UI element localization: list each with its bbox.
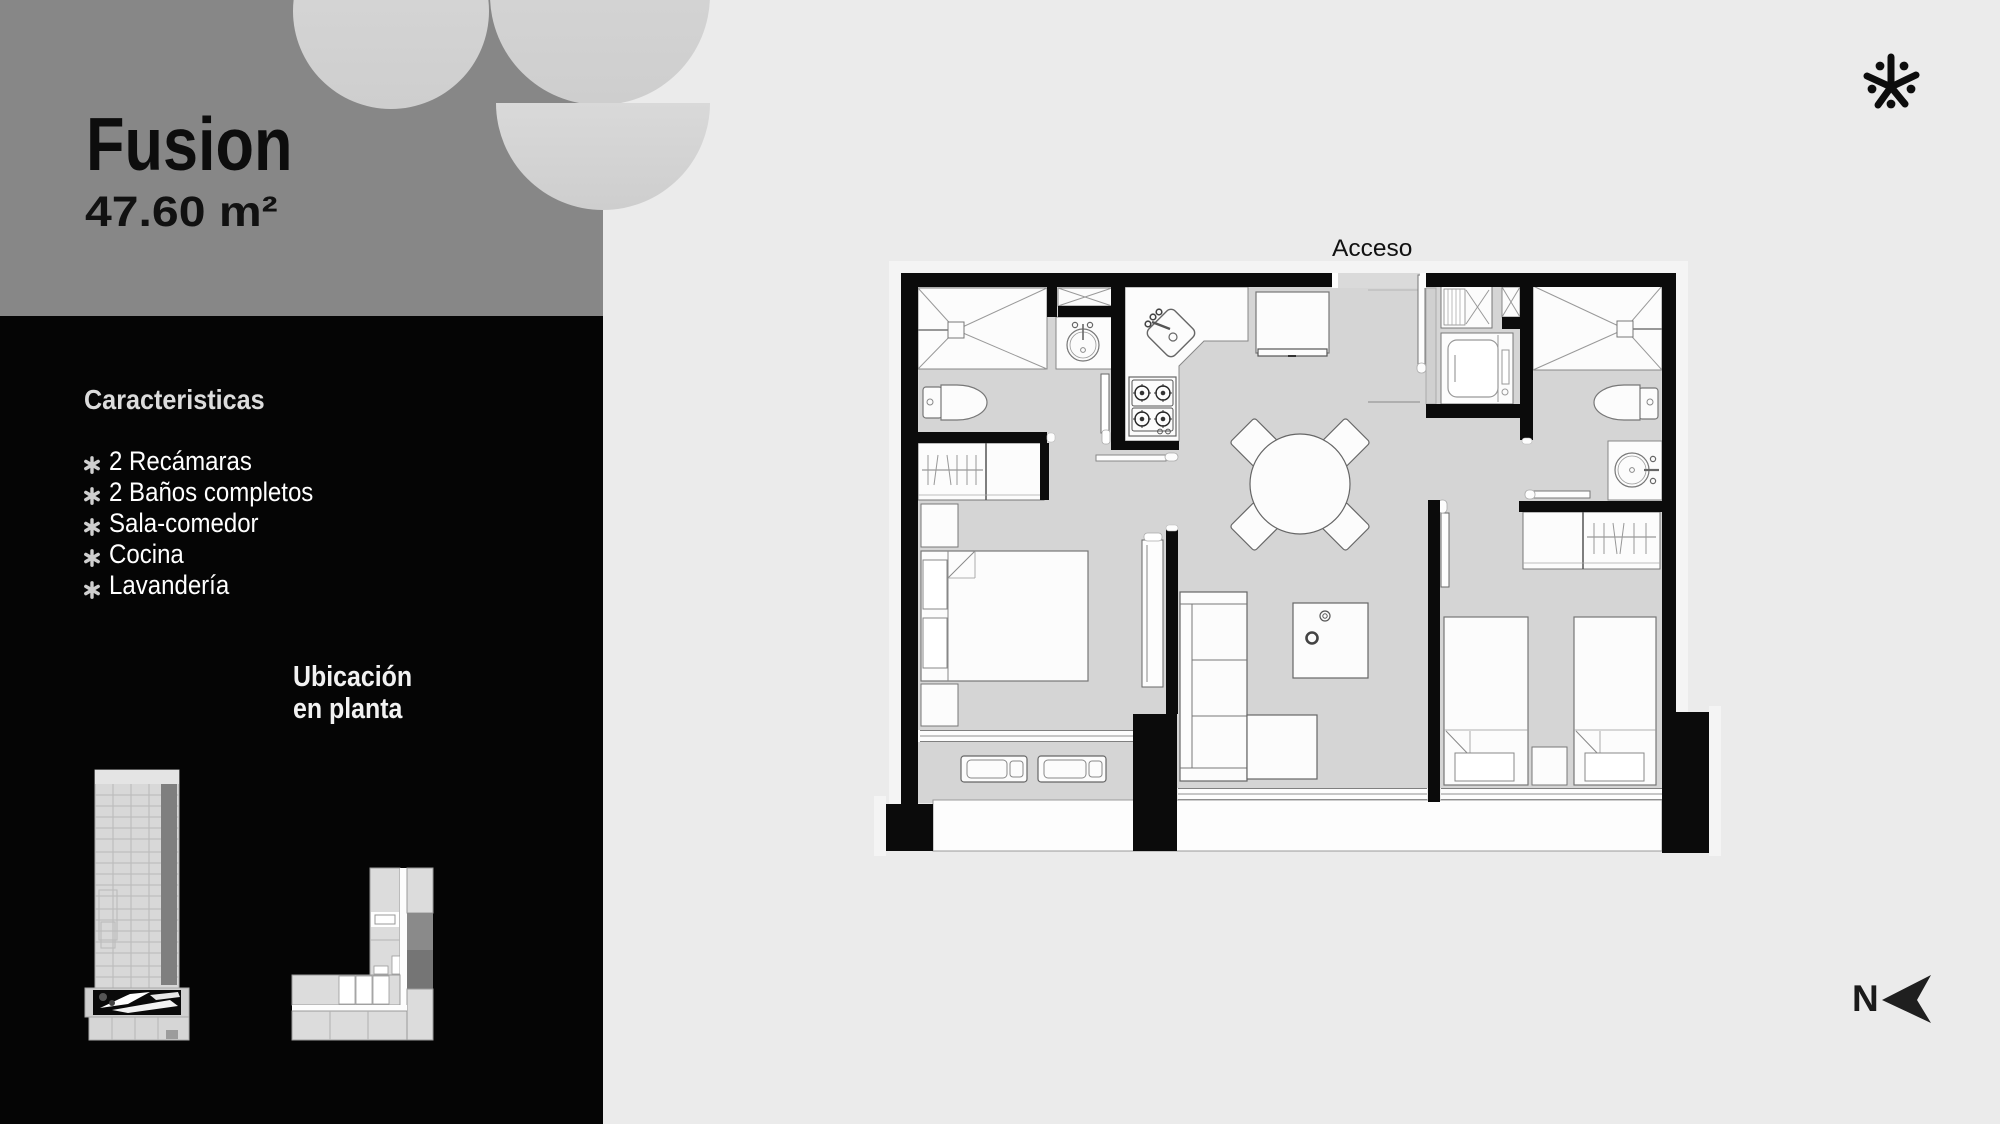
svg-text:Caracteristicas: Caracteristicas — [84, 384, 265, 416]
svg-text:47.60 m²: 47.60 m² — [85, 187, 278, 235]
svg-text:2 Recámaras: 2 Recámaras — [109, 447, 252, 477]
svg-text:2 Baños completos: 2 Baños completos — [109, 478, 313, 508]
svg-text:Sala-comedor: Sala-comedor — [109, 509, 259, 539]
svg-text:Fusion: Fusion — [86, 102, 292, 186]
svg-text:Acceso: Acceso — [1332, 235, 1412, 262]
svg-text:N: N — [1852, 978, 1879, 1019]
svg-text:Lavandería: Lavandería — [109, 571, 230, 601]
svg-text:Ubicación: Ubicación — [293, 660, 412, 692]
svg-text:en planta: en planta — [293, 692, 403, 724]
svg-text:Cocina: Cocina — [109, 540, 185, 570]
